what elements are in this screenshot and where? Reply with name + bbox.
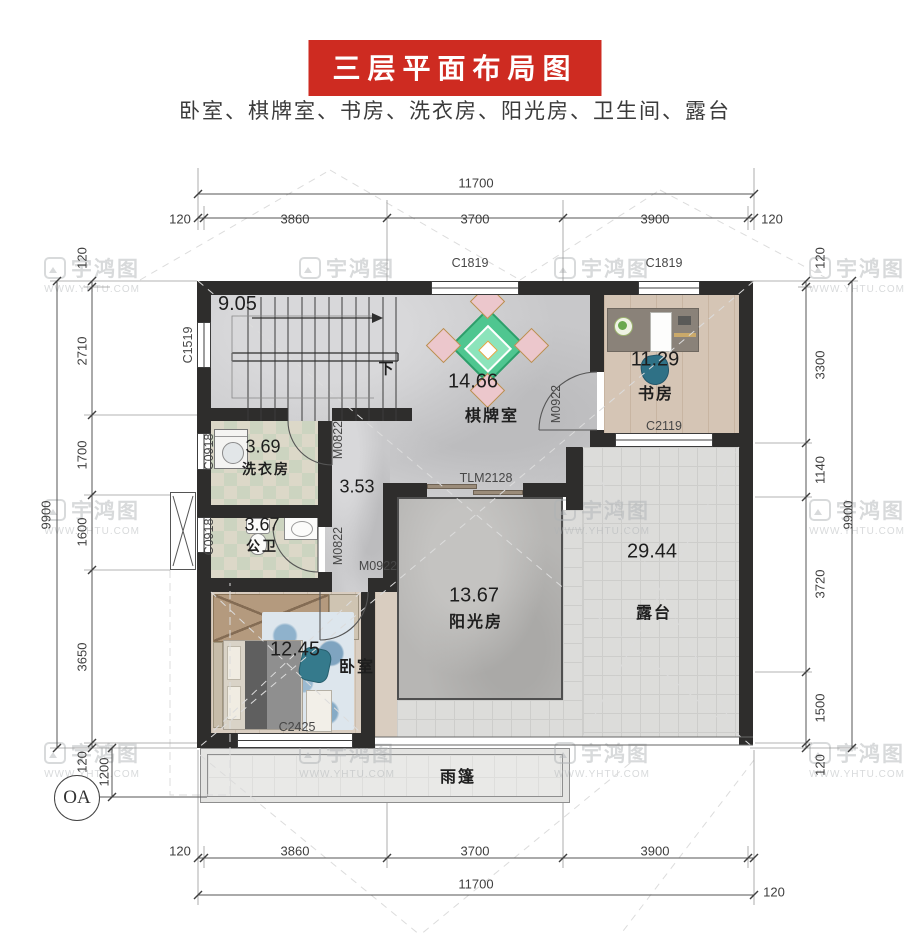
stairs-down-label: 下 [378, 358, 393, 379]
dim-left-120t: 120 [75, 247, 90, 269]
dim-left-total: 9900 [39, 501, 54, 530]
axis-bubble: OA [54, 775, 100, 821]
dim-bottom-3900: 3900 [641, 844, 670, 859]
label-door-m0922-study: M0922 [549, 385, 563, 423]
chess-room-name: 棋牌室 [465, 402, 519, 426]
dim-top-120l: 120 [169, 212, 191, 227]
dim-top-3900: 3900 [641, 212, 670, 227]
sunroom-name: 阳光房 [449, 608, 503, 632]
label-door-m0822-laundry: M0822 [331, 421, 345, 459]
dim-left-3650: 3650 [75, 643, 90, 672]
laundry-area: 3.69 [245, 437, 280, 458]
dim-bottom-3700: 3700 [461, 844, 490, 859]
canopy-name: 雨篷 [440, 763, 476, 787]
bath-area: 3.67 [244, 515, 279, 536]
chess-room-area: 14.66 [448, 371, 498, 394]
dim-right-3720: 3720 [813, 570, 828, 599]
dim-right-1500: 1500 [813, 694, 828, 723]
label-window-c1519: C1519 [181, 327, 195, 364]
terrace-area: 29.44 [627, 541, 677, 564]
dim-top-3700: 3700 [461, 212, 490, 227]
dim-left-1200: 1200 [97, 758, 112, 787]
dim-right-1140: 1140 [813, 456, 828, 484]
axis-bubble-label: OA [63, 787, 90, 809]
label-window-c2425: C2425 [279, 720, 316, 734]
dim-bottom-120l: 120 [169, 844, 191, 859]
study-area: 11.29 [631, 349, 680, 372]
label-window-c0918-laundry: C0918 [202, 434, 216, 471]
label-window-c0918-bath: C0918 [202, 519, 216, 556]
dim-right-total: 9900 [841, 501, 856, 530]
dim-left-1600: 1600 [75, 518, 90, 547]
dim-right-3300: 3300 [813, 351, 828, 380]
dim-bottom-120r: 120 [763, 885, 785, 900]
laundry-name: 洗衣房 [242, 459, 290, 479]
floor-plan-page: 三层平面布局图 卧室、棋牌室、书房、洗衣房、阳光房、卫生间、露台 [0, 0, 910, 941]
label-window-c1819-left: C1819 [452, 256, 489, 270]
label-window-c1819-right: C1819 [646, 256, 683, 270]
bedroom-name: 卧室 [339, 653, 375, 677]
hall-area: 3.53 [339, 477, 374, 498]
sunroom-area: 13.67 [449, 585, 499, 608]
label-door-m0822-bath: M0822 [331, 527, 345, 565]
label-door-tlm2128: TLM2128 [460, 471, 513, 485]
bath-name: 公卫 [246, 536, 278, 556]
label-window-c2119: C2119 [646, 419, 682, 433]
bedroom-area: 12.45 [270, 639, 320, 662]
dim-bottom-total: 11700 [458, 877, 493, 892]
plan-linework [0, 0, 910, 941]
dim-top-total: 11700 [458, 176, 493, 191]
dim-left-120b: 120 [75, 751, 90, 773]
dim-bottom-3860: 3860 [281, 844, 310, 859]
label-door-m0922-bedroom: M0922 [359, 559, 397, 573]
study-name: 书房 [638, 380, 674, 404]
stairs-area: 9.05 [218, 293, 257, 316]
terrace-name: 露台 [636, 599, 672, 623]
dim-right-120t: 120 [813, 247, 828, 269]
dim-left-2710: 2710 [75, 337, 90, 366]
dim-left-1700: 1700 [75, 441, 90, 470]
dim-right-120b: 120 [813, 754, 828, 776]
dim-top-120r: 120 [761, 212, 783, 227]
dim-top-3860: 3860 [281, 212, 310, 227]
